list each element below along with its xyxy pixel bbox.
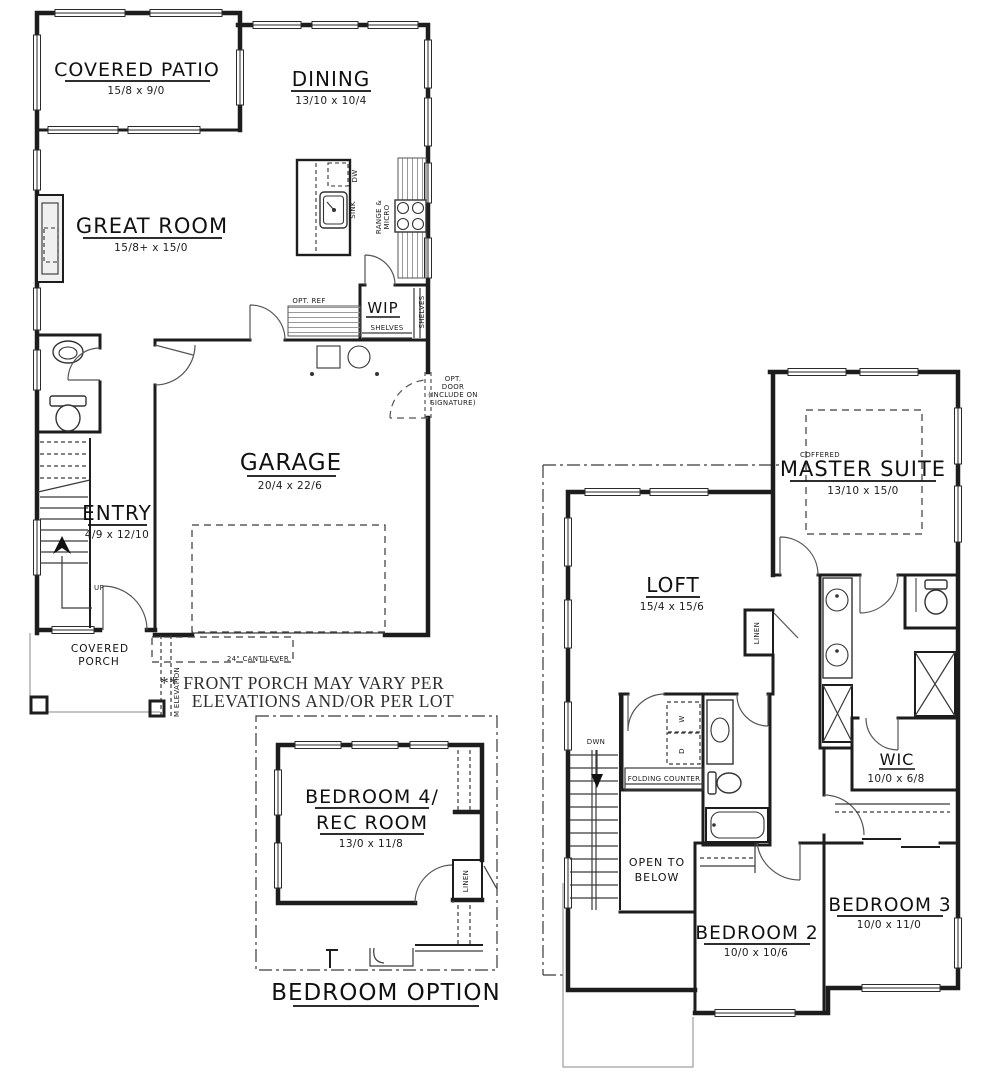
open-to-below-label-2: BELOW xyxy=(635,871,680,884)
floor-plan-sheet: COVERED PATIO 15/8 x 9/0 DINING 13/10 x … xyxy=(0,0,1000,1077)
front-porch-note: ** FRONT PORCH MAY VARY PER ELEVATIONS A… xyxy=(160,673,454,711)
great-room-dims: 15/8+ x 15/0 xyxy=(114,242,188,254)
wic-label: WIC xyxy=(880,750,915,769)
opt-door-label-2: DOOR xyxy=(442,383,464,391)
covered-patio-dims: 15/8 x 9/0 xyxy=(107,85,164,97)
range-and-micro xyxy=(395,200,426,232)
bedroom2-dims: 10/0 x 10/6 xyxy=(724,947,788,959)
covered-porch-label-1: COVERED xyxy=(71,643,129,655)
bedroom4-label-1: BEDROOM 4/ xyxy=(305,786,439,808)
master-vanity xyxy=(823,578,852,678)
wip-label: WIP xyxy=(367,299,398,317)
dishwasher-label: DW xyxy=(351,170,359,183)
bedroom2-label: BEDROOM 2 xyxy=(695,923,818,944)
covered-porch-label-2: PORCH xyxy=(78,656,120,668)
note-line-2: ELEVATIONS AND/OR PER LOT xyxy=(192,691,455,711)
opt-door-label-1: OPT. xyxy=(445,375,462,383)
master-suite-dims: 13/10 x 15/0 xyxy=(827,485,899,497)
kitchen-island xyxy=(297,160,350,255)
bedroom-option-title: BEDROOM OPTION xyxy=(271,980,500,1006)
dryer-label: D xyxy=(678,748,686,754)
opt-ref-label: OPT. REF xyxy=(292,297,325,305)
wip-shelves-label: SHELVES xyxy=(370,324,403,332)
loft-label: LOFT xyxy=(646,573,700,597)
wip-shelves-vertical-label: SHELVES xyxy=(418,295,426,328)
powder-sink xyxy=(53,341,83,363)
bedroom4-label-2: REC ROOM xyxy=(316,812,428,834)
stairs-up-label: UP xyxy=(94,584,104,592)
sink-label: SINK xyxy=(349,201,357,219)
entry-label: ENTRY xyxy=(82,501,152,525)
great-room-label: GREAT ROOM xyxy=(76,214,228,238)
stairs-down-label: DWN xyxy=(587,738,605,746)
note-line-1: ** FRONT PORCH MAY VARY PER xyxy=(160,673,444,693)
fireplace xyxy=(37,195,63,282)
master-toilet xyxy=(925,580,947,614)
range-label-1: RANGE & xyxy=(375,200,383,234)
dining-dims: 13/10 x 10/4 xyxy=(295,95,367,107)
wic-dims: 10/0 x 6/8 xyxy=(867,773,924,785)
opt-door-label-4: SIGNATURE) xyxy=(430,399,476,407)
bedroom4-dims: 13/0 x 11/8 xyxy=(339,838,403,850)
entry-dims: 4/9 x 12/10 xyxy=(85,529,149,541)
loft-linen-label: LINEN xyxy=(753,622,761,644)
garage-label: GARAGE xyxy=(240,450,342,476)
open-to-below-label-1: OPEN TO xyxy=(629,856,685,869)
loft-dims: 15/4 x 15/6 xyxy=(640,601,704,613)
washer-label: W xyxy=(678,715,686,722)
garage-dims: 20/4 x 22/6 xyxy=(258,480,322,492)
range-label-2: MICRO xyxy=(383,204,391,229)
kitchen-counter xyxy=(395,158,426,278)
bedroom3-label: BEDROOM 3 xyxy=(828,895,951,916)
opt-ref-counter xyxy=(288,306,360,336)
covered-patio-label: COVERED PATIO xyxy=(54,59,220,81)
folding-counter-label: FOLDING COUNTER xyxy=(628,775,701,783)
master-suite-label: MASTER SUITE xyxy=(780,457,946,481)
bedroom4-linen-label: LINEN xyxy=(462,870,470,892)
opt-door-label-3: (INCLUDE ON xyxy=(428,391,478,399)
hall-bath-toilet xyxy=(708,772,741,794)
bedroom3-dims: 10/0 x 11/0 xyxy=(857,919,921,931)
floor-plan-drawing: COVERED PATIO 15/8 x 9/0 DINING 13/10 x … xyxy=(0,0,1000,1077)
dining-label: DINING xyxy=(292,67,371,91)
cantilever-label: 24" CANTILEVER xyxy=(227,655,289,663)
